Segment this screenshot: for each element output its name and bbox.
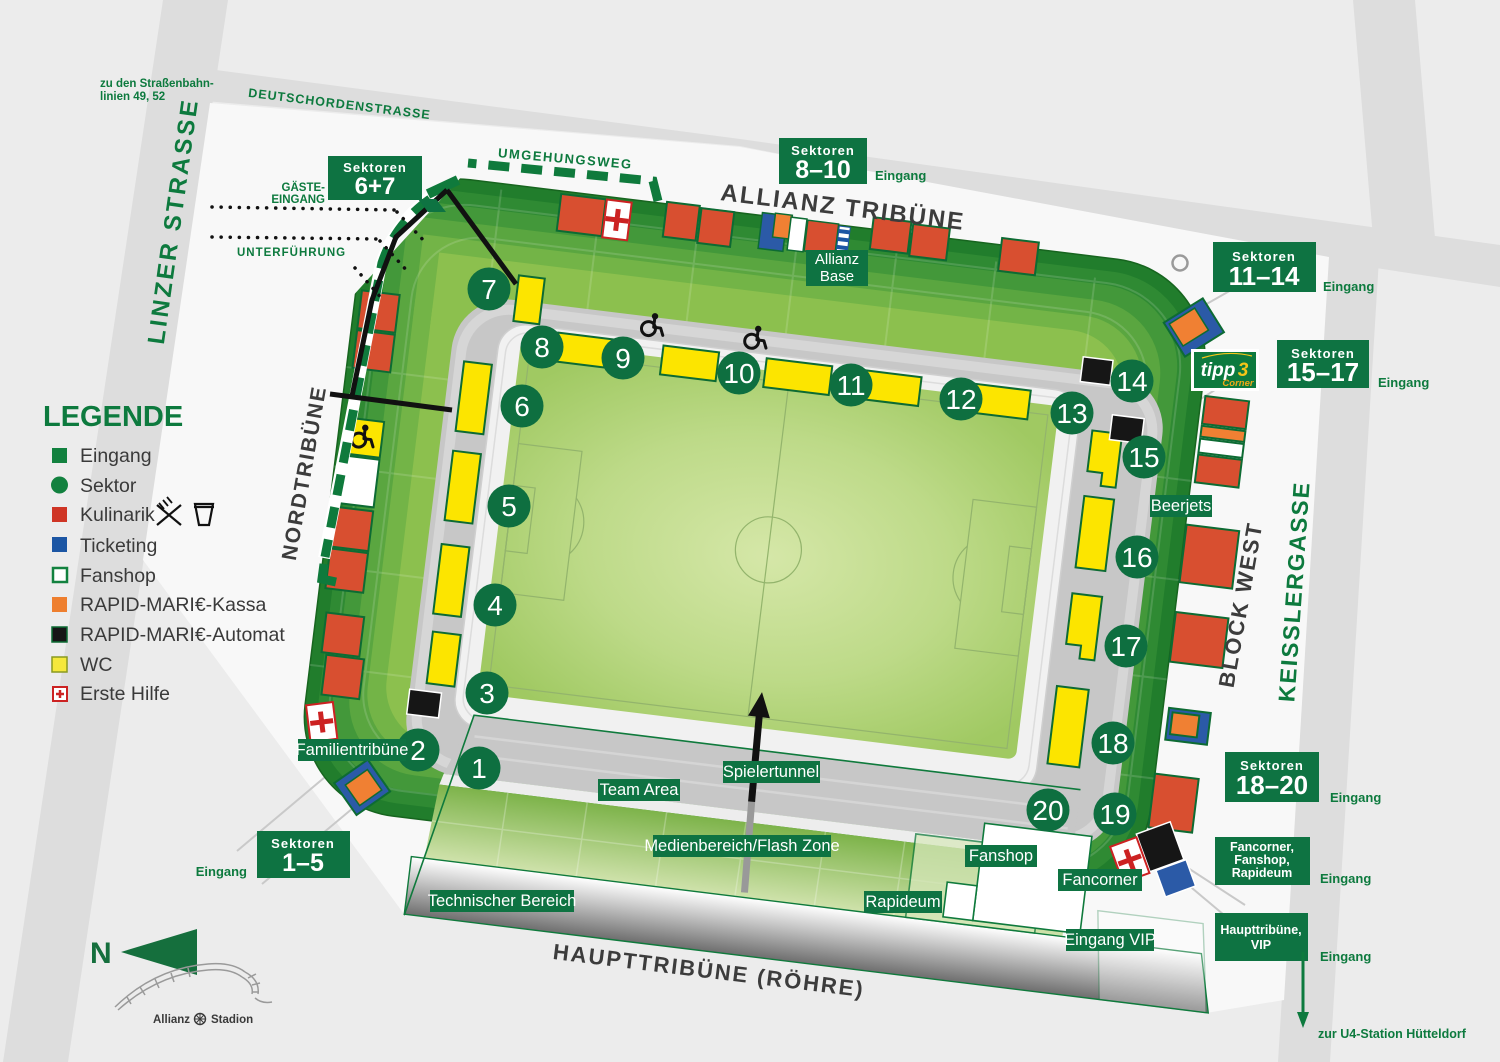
svg-text:17: 17 bbox=[1110, 631, 1141, 662]
svg-text:Rapideum: Rapideum bbox=[1232, 866, 1292, 880]
svg-text:15–17: 15–17 bbox=[1287, 357, 1359, 387]
svg-text:Rapideum: Rapideum bbox=[865, 893, 940, 911]
svg-text:Allianz: Allianz bbox=[815, 251, 859, 268]
svg-text:Allianz: Allianz bbox=[153, 1014, 190, 1026]
svg-text:8–10: 8–10 bbox=[795, 156, 851, 184]
svg-text:11–14: 11–14 bbox=[1229, 261, 1300, 291]
svg-text:WC: WC bbox=[80, 654, 113, 676]
svg-text:15: 15 bbox=[1128, 442, 1159, 473]
svg-text:EINGANG: EINGANG bbox=[271, 194, 325, 206]
svg-text:16: 16 bbox=[1121, 542, 1152, 573]
svg-text:Familientribüne: Familientribüne bbox=[296, 741, 409, 759]
svg-text:1–5: 1–5 bbox=[282, 849, 324, 877]
svg-text:Ticketing: Ticketing bbox=[80, 535, 157, 557]
svg-text:Haupttribüne,: Haupttribüne, bbox=[1220, 923, 1301, 937]
svg-text:1: 1 bbox=[471, 753, 487, 784]
svg-text:Eingang: Eingang bbox=[1330, 790, 1381, 805]
svg-text:Team Area: Team Area bbox=[600, 781, 680, 799]
svg-text:Fancorner,: Fancorner, bbox=[1230, 840, 1294, 854]
svg-text:VIP: VIP bbox=[1251, 938, 1271, 952]
svg-text:Beerjets: Beerjets bbox=[1151, 497, 1212, 515]
svg-text:Medienbereich/Flash Zone: Medienbereich/Flash Zone bbox=[644, 837, 839, 855]
svg-text:RAPID-MARI€-Automat: RAPID-MARI€-Automat bbox=[80, 624, 285, 646]
svg-text:18: 18 bbox=[1097, 728, 1128, 759]
svg-text:Spielertunnel: Spielertunnel bbox=[723, 763, 819, 781]
svg-text:GÄSTE-: GÄSTE- bbox=[282, 181, 326, 194]
svg-text:Eingang: Eingang bbox=[875, 168, 926, 183]
svg-text:9: 9 bbox=[615, 343, 631, 374]
svg-text:Eingang: Eingang bbox=[1323, 279, 1374, 294]
svg-text:6: 6 bbox=[514, 391, 530, 422]
svg-text:Sektor: Sektor bbox=[80, 475, 137, 497]
svg-text:20: 20 bbox=[1032, 795, 1063, 826]
svg-text:12: 12 bbox=[945, 384, 976, 415]
svg-text:UNTERFÜHRUNG: UNTERFÜHRUNG bbox=[237, 246, 346, 259]
svg-text:Stadion: Stadion bbox=[211, 1014, 253, 1026]
svg-text:Eingang VIP: Eingang VIP bbox=[1064, 931, 1156, 949]
svg-text:zu den Straßenbahn-: zu den Straßenbahn- bbox=[100, 78, 214, 90]
svg-text:Eingang: Eingang bbox=[196, 864, 247, 879]
svg-text:Erste Hilfe: Erste Hilfe bbox=[80, 683, 170, 705]
svg-text:zur U4-Station Hütteldorf: zur U4-Station Hütteldorf bbox=[1318, 1027, 1467, 1041]
svg-text:N: N bbox=[90, 937, 112, 970]
svg-text:Kulinarik: Kulinarik bbox=[80, 504, 155, 526]
svg-text:4: 4 bbox=[487, 590, 503, 621]
svg-text:Fancorner: Fancorner bbox=[1062, 871, 1138, 889]
svg-text:Eingang: Eingang bbox=[1378, 375, 1429, 390]
svg-text:19: 19 bbox=[1099, 799, 1130, 830]
svg-text:5: 5 bbox=[501, 491, 517, 522]
svg-text:2: 2 bbox=[410, 735, 426, 766]
svg-text:14: 14 bbox=[1116, 366, 1147, 397]
svg-text:7: 7 bbox=[481, 274, 497, 305]
svg-text:11: 11 bbox=[836, 370, 865, 401]
svg-text:Eingang: Eingang bbox=[80, 445, 152, 467]
svg-text:10: 10 bbox=[723, 358, 754, 389]
svg-text:Corner: Corner bbox=[1222, 378, 1254, 389]
svg-text:Technischer Bereich: Technischer Bereich bbox=[428, 892, 577, 910]
svg-text:Eingang: Eingang bbox=[1320, 949, 1371, 964]
svg-text:RAPID-MARI€-Kassa: RAPID-MARI€-Kassa bbox=[80, 594, 267, 616]
svg-text:LEGENDE: LEGENDE bbox=[43, 401, 183, 433]
svg-text:linien 49, 52: linien 49, 52 bbox=[100, 91, 165, 103]
svg-text:Fanshop: Fanshop bbox=[80, 565, 156, 587]
svg-text:Fanshop,: Fanshop, bbox=[1234, 853, 1290, 867]
svg-text:6+7: 6+7 bbox=[355, 173, 396, 200]
svg-text:Eingang: Eingang bbox=[1320, 871, 1371, 886]
svg-text:13: 13 bbox=[1056, 398, 1087, 429]
svg-text:3: 3 bbox=[479, 678, 495, 709]
svg-text:18–20: 18–20 bbox=[1236, 770, 1308, 800]
svg-text:8: 8 bbox=[534, 332, 550, 363]
svg-text:Fanshop: Fanshop bbox=[969, 847, 1033, 865]
svg-text:Base: Base bbox=[820, 268, 854, 285]
